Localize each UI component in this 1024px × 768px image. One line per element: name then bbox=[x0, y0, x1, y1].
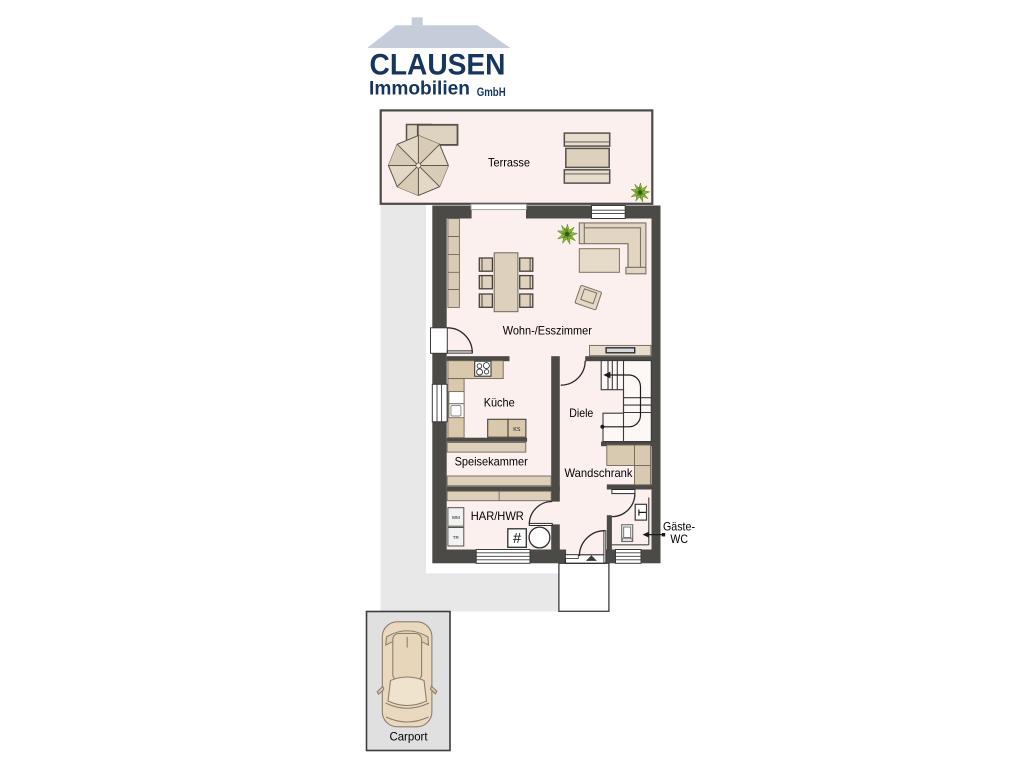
svg-text:WC: WC bbox=[670, 532, 688, 546]
svg-text:WM: WM bbox=[452, 515, 460, 520]
svg-text:#: # bbox=[513, 530, 522, 547]
svg-text:Küche: Küche bbox=[484, 396, 515, 410]
svg-text:Immobilien: Immobilien bbox=[369, 79, 470, 100]
svg-text:Diele: Diele bbox=[569, 406, 593, 420]
svg-text:Terrasse: Terrasse bbox=[488, 155, 530, 169]
svg-text:Wohn-/Esszimmer: Wohn-/Esszimmer bbox=[503, 323, 592, 337]
svg-text:KS: KS bbox=[513, 427, 521, 433]
svg-text:HAR/HWR: HAR/HWR bbox=[471, 509, 524, 523]
svg-text:Carport: Carport bbox=[389, 730, 428, 744]
svg-text:Speisekammer: Speisekammer bbox=[455, 455, 528, 469]
svg-text:Wandschrank: Wandschrank bbox=[565, 466, 634, 480]
svg-text:TR: TR bbox=[453, 535, 460, 540]
svg-text:GmbH: GmbH bbox=[477, 85, 506, 99]
svg-text:CLAUSEN: CLAUSEN bbox=[370, 49, 506, 82]
